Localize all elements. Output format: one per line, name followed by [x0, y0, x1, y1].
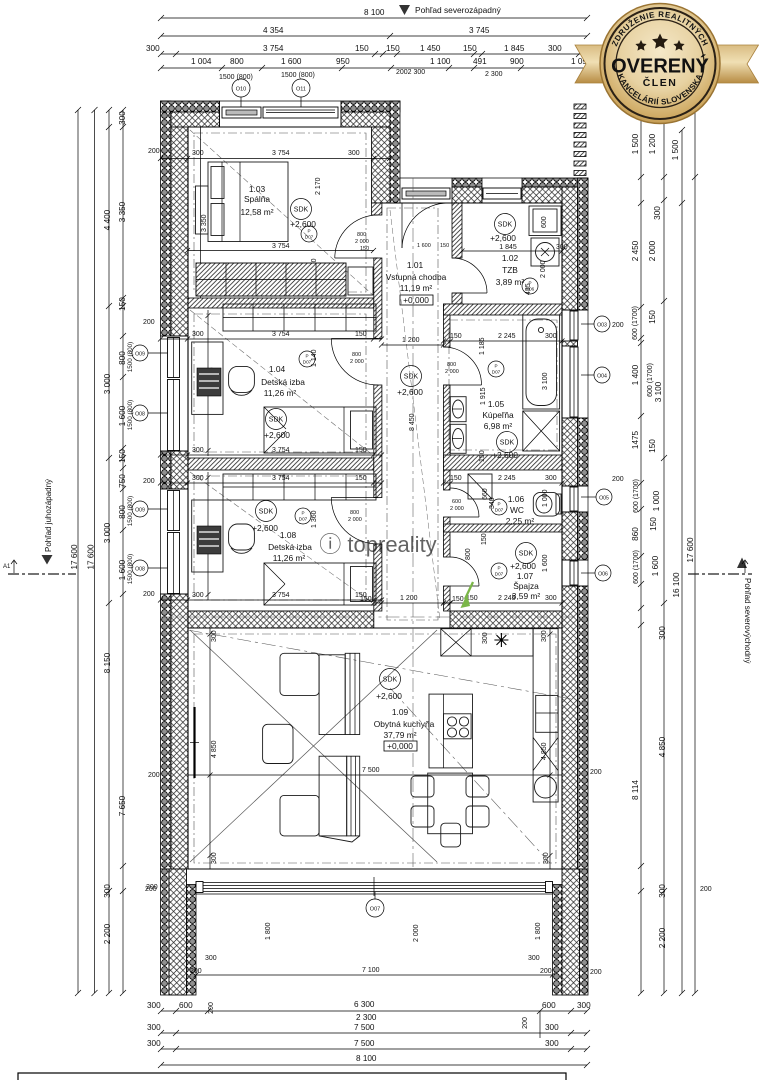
svg-text:200: 200 — [148, 772, 160, 779]
svg-text:491: 491 — [473, 57, 487, 66]
svg-text:1 200: 1 200 — [400, 595, 418, 602]
svg-text:+2,600: +2,600 — [490, 233, 516, 243]
svg-text:200: 200 — [522, 1017, 529, 1029]
svg-text:O10: O10 — [236, 87, 246, 93]
svg-text:O07: O07 — [370, 907, 380, 913]
svg-text:P: P — [528, 281, 531, 286]
svg-text:1.09: 1.09 — [392, 707, 409, 717]
svg-text:7 500: 7 500 — [362, 767, 380, 774]
svg-text:1 000: 1 000 — [652, 490, 661, 511]
svg-text:1 600: 1 600 — [417, 243, 431, 249]
svg-text:+2,600: +2,600 — [376, 691, 402, 701]
svg-text:+2,600: +2,600 — [290, 219, 316, 229]
svg-text:1 360: 1 360 — [311, 510, 318, 528]
svg-text:800: 800 — [357, 232, 366, 238]
svg-text:200: 200 — [190, 968, 202, 975]
svg-text:Detská izba: Detská izba — [268, 542, 312, 552]
svg-text:1 200: 1 200 — [648, 133, 657, 154]
svg-text:3 745: 3 745 — [469, 26, 490, 35]
svg-text:SDK: SDK — [269, 417, 284, 424]
svg-text:300: 300 — [653, 206, 662, 220]
svg-text:150: 150 — [648, 310, 657, 324]
svg-text:300: 300 — [211, 852, 218, 864]
svg-text:SDK: SDK — [498, 222, 513, 229]
svg-text:150: 150 — [463, 44, 477, 53]
svg-text:150: 150 — [481, 533, 488, 545]
svg-text:6,98 m²: 6,98 m² — [484, 421, 513, 431]
svg-text:1.04: 1.04 — [269, 364, 286, 374]
svg-text:SDK: SDK — [294, 207, 309, 214]
svg-text:300: 300 — [541, 630, 548, 642]
svg-text:300: 300 — [192, 150, 204, 157]
svg-text:150: 150 — [648, 439, 657, 453]
svg-text:3 000: 3 000 — [103, 373, 112, 394]
svg-text:Pohľad juhozápadný: Pohľad juhozápadný — [44, 479, 53, 552]
svg-text:300: 300 — [556, 244, 568, 251]
svg-text:150: 150 — [360, 596, 372, 603]
svg-text:1 600: 1 600 — [651, 555, 660, 576]
svg-text:O05: O05 — [599, 496, 609, 502]
svg-text:Obytná kuchyňa: Obytná kuchyňa — [374, 719, 435, 729]
svg-text:300: 300 — [348, 150, 360, 157]
svg-text:2 000: 2 000 — [450, 506, 464, 512]
svg-text:300: 300 — [543, 852, 550, 864]
svg-text:P: P — [307, 229, 310, 234]
svg-text:150: 150 — [118, 297, 127, 311]
svg-text:4 400: 4 400 — [103, 209, 112, 230]
svg-text:3 350: 3 350 — [201, 214, 208, 232]
svg-text:2 450: 2 450 — [631, 240, 640, 261]
svg-text:17 600: 17 600 — [87, 544, 96, 569]
svg-text:300: 300 — [658, 626, 667, 640]
svg-text:O08: O08 — [135, 567, 145, 573]
svg-text:P: P — [301, 511, 304, 516]
svg-text:SDK: SDK — [383, 677, 398, 684]
svg-text:2 300: 2 300 — [485, 71, 503, 78]
svg-text:1 600: 1 600 — [542, 554, 549, 572]
svg-text:O09: O09 — [135, 508, 145, 514]
svg-text:P: P — [497, 566, 500, 571]
svg-text:150: 150 — [450, 475, 462, 482]
svg-text:P: P — [494, 364, 497, 369]
svg-text:200: 200 — [612, 322, 624, 329]
svg-text:200: 200 — [700, 886, 712, 893]
svg-text:Spálňa: Spálňa — [244, 194, 270, 204]
svg-text:150: 150 — [118, 449, 127, 463]
svg-text:300: 300 — [545, 595, 557, 602]
svg-text:4 850: 4 850 — [541, 742, 548, 760]
svg-text:1.03: 1.03 — [249, 184, 266, 194]
svg-text:300: 300 — [147, 1023, 161, 1032]
svg-text:2 000: 2 000 — [413, 924, 420, 942]
svg-text:O08: O08 — [135, 412, 145, 418]
svg-text:D07: D07 — [305, 235, 314, 240]
svg-text:800: 800 — [230, 57, 244, 66]
svg-text:3 754: 3 754 — [272, 243, 290, 250]
svg-text:16 100: 16 100 — [672, 572, 681, 597]
svg-text:3,89 m²: 3,89 m² — [496, 277, 525, 287]
svg-text:1.07: 1.07 — [517, 571, 534, 581]
svg-text:300: 300 — [545, 1023, 559, 1032]
svg-text:3 100: 3 100 — [654, 381, 663, 402]
svg-text:300: 300 — [211, 630, 218, 642]
svg-text:+2,600: +2,600 — [510, 561, 536, 571]
svg-text:7 650: 7 650 — [118, 795, 127, 816]
svg-text:800: 800 — [447, 362, 456, 368]
svg-text:1 004: 1 004 — [191, 57, 212, 66]
svg-text:D06: D06 — [526, 287, 535, 292]
svg-text:1.05: 1.05 — [488, 399, 505, 409]
svg-text:200: 200 — [145, 886, 157, 893]
svg-text:150: 150 — [450, 333, 462, 340]
svg-text:600: 600 — [452, 499, 461, 505]
svg-text:200: 200 — [143, 319, 155, 326]
svg-text:2 245: 2 245 — [498, 475, 516, 482]
svg-text:2002 300: 2002 300 — [396, 69, 425, 76]
svg-text:2 245: 2 245 — [498, 595, 516, 602]
svg-text:600 (1700): 600 (1700) — [633, 479, 640, 513]
svg-text:800: 800 — [352, 352, 361, 358]
svg-text:WC: WC — [510, 505, 524, 515]
svg-text:2,25 m²: 2,25 m² — [506, 516, 535, 526]
svg-text:11,19 m²: 11,19 m² — [400, 283, 433, 293]
svg-text:300: 300 — [192, 331, 204, 338]
svg-text:+0,000: +0,000 — [387, 741, 413, 751]
svg-text:150: 150 — [452, 596, 464, 603]
svg-text:D07: D07 — [303, 360, 312, 365]
svg-text:SDK: SDK — [519, 551, 534, 558]
svg-text:600: 600 — [541, 216, 548, 228]
svg-text:37,79 m²: 37,79 m² — [383, 730, 416, 740]
svg-text:150: 150 — [479, 450, 486, 462]
svg-text:150: 150 — [386, 44, 400, 53]
svg-text:200: 200 — [590, 969, 602, 976]
svg-text:17 600: 17 600 — [70, 544, 79, 569]
svg-text:2 300: 2 300 — [356, 1013, 377, 1022]
svg-text:2 000: 2 000 — [540, 260, 547, 278]
svg-text:O09: O09 — [135, 352, 145, 358]
svg-text:7 500: 7 500 — [354, 1023, 375, 1032]
svg-text:P: P — [497, 502, 500, 507]
svg-text:4 850: 4 850 — [211, 740, 218, 758]
svg-text:300: 300 — [192, 475, 204, 482]
svg-text:11,26 m²: 11,26 m² — [273, 553, 306, 563]
svg-text:1 600: 1 600 — [281, 57, 302, 66]
svg-text:1 200: 1 200 — [402, 337, 420, 344]
svg-text:1 600: 1 600 — [118, 405, 127, 426]
svg-text:+0,000: +0,000 — [403, 295, 429, 305]
svg-text:300: 300 — [146, 44, 160, 53]
svg-text:TZB: TZB — [502, 265, 518, 275]
svg-text:2 170: 2 170 — [315, 177, 322, 195]
svg-text:300: 300 — [482, 632, 489, 644]
svg-text:11,26 m²: 11,26 m² — [264, 388, 297, 398]
svg-text:1.08: 1.08 — [280, 530, 297, 540]
svg-text:4 850: 4 850 — [658, 736, 667, 757]
svg-text:300: 300 — [545, 1039, 559, 1048]
svg-text:3 754: 3 754 — [272, 331, 290, 338]
svg-text:2 000: 2 000 — [348, 517, 362, 523]
svg-text:1500 (800): 1500 (800) — [127, 554, 134, 584]
svg-text:150: 150 — [360, 246, 369, 252]
svg-text:2 245: 2 245 — [498, 333, 516, 340]
svg-text:1 400: 1 400 — [631, 364, 640, 385]
svg-text:300: 300 — [577, 1001, 591, 1010]
svg-text:+2,600: +2,600 — [264, 430, 290, 440]
svg-text:1 500: 1 500 — [671, 139, 680, 160]
svg-text:1 800: 1 800 — [535, 922, 542, 940]
svg-text:1 100: 1 100 — [430, 57, 451, 66]
svg-text:SDK: SDK — [500, 440, 515, 447]
svg-text:1 800: 1 800 — [265, 922, 272, 940]
svg-text:D07: D07 — [495, 572, 504, 577]
svg-text:1500 (800): 1500 (800) — [219, 74, 253, 81]
svg-text:3 754: 3 754 — [272, 592, 290, 599]
svg-text:300: 300 — [147, 1039, 161, 1048]
svg-text:800: 800 — [465, 548, 472, 560]
svg-text:OVERENÝ: OVERENÝ — [611, 54, 709, 78]
svg-text:300: 300 — [658, 884, 667, 898]
svg-text:SDK: SDK — [404, 374, 419, 381]
svg-text:300: 300 — [192, 592, 204, 599]
svg-text:300: 300 — [545, 333, 557, 340]
svg-text:150: 150 — [355, 44, 369, 53]
svg-text:1 600: 1 600 — [118, 559, 127, 580]
svg-text:1500 (800): 1500 (800) — [127, 496, 134, 526]
svg-text:2 200: 2 200 — [103, 923, 112, 944]
svg-text:1 845: 1 845 — [504, 44, 525, 53]
svg-text:600: 600 — [542, 1001, 556, 1010]
svg-text:150: 150 — [440, 243, 449, 249]
svg-text:300: 300 — [528, 955, 540, 962]
svg-text:1500 (800): 1500 (800) — [127, 400, 134, 430]
svg-text:2 000: 2 000 — [648, 240, 657, 261]
svg-text:1475: 1475 — [631, 430, 640, 449]
svg-text:1.06: 1.06 — [508, 494, 525, 504]
svg-text:1 450: 1 450 — [420, 44, 441, 53]
svg-text:7 100: 7 100 — [362, 967, 380, 974]
svg-text:800: 800 — [118, 351, 127, 365]
svg-text:800: 800 — [118, 505, 127, 519]
svg-text:1.02: 1.02 — [502, 253, 519, 263]
svg-text:600 (1700): 600 (1700) — [633, 550, 640, 584]
svg-text:600 (1700): 600 (1700) — [632, 306, 639, 340]
svg-text:Špajza: Špajza — [513, 581, 539, 591]
svg-text:O11: O11 — [296, 87, 306, 93]
svg-text:1 140: 1 140 — [311, 349, 318, 367]
svg-text:150: 150 — [355, 475, 367, 482]
svg-text:150: 150 — [649, 517, 658, 531]
svg-text:300: 300 — [545, 475, 557, 482]
svg-text:8 150: 8 150 — [103, 652, 112, 673]
svg-text:200: 200 — [208, 1002, 215, 1014]
svg-text:O06: O06 — [598, 572, 608, 578]
svg-text:P: P — [305, 354, 308, 359]
svg-text:2 000: 2 000 — [350, 359, 364, 365]
svg-text:D07: D07 — [495, 508, 504, 513]
svg-text:1500 (800): 1500 (800) — [281, 72, 315, 79]
svg-text:150: 150 — [355, 331, 367, 338]
svg-text:3 350: 3 350 — [118, 201, 127, 222]
svg-text:950: 950 — [336, 57, 350, 66]
svg-text:300: 300 — [118, 111, 127, 125]
svg-text:17 600: 17 600 — [686, 537, 695, 562]
svg-text:Detská izba: Detská izba — [261, 377, 305, 387]
svg-text:Pohľad severozápadný: Pohľad severozápadný — [415, 5, 502, 15]
svg-text:3 754: 3 754 — [272, 150, 290, 157]
svg-text:3,59 m²: 3,59 m² — [512, 591, 541, 601]
svg-text:1 500: 1 500 — [631, 133, 640, 154]
svg-text:Kúpeľňa: Kúpeľňa — [482, 410, 514, 420]
svg-text:900: 900 — [510, 57, 524, 66]
svg-text:ⓘ topreality: ⓘ topreality — [319, 532, 436, 557]
svg-text:300: 300 — [205, 955, 217, 962]
svg-text:2 200: 2 200 — [658, 927, 667, 948]
svg-text:7 500: 7 500 — [354, 1039, 375, 1048]
svg-text:O03: O03 — [597, 323, 607, 329]
svg-text:SDK: SDK — [259, 509, 274, 516]
svg-text:Pohľad severovýchodný: Pohľad severovýchodný — [743, 578, 752, 664]
svg-text:200: 200 — [590, 769, 602, 776]
svg-text:+2,600: +2,600 — [252, 523, 278, 533]
svg-text:200: 200 — [148, 148, 160, 155]
svg-text:ČLEN: ČLEN — [643, 76, 678, 89]
svg-text:1.01: 1.01 — [407, 260, 424, 270]
svg-text:3 000: 3 000 — [103, 522, 112, 543]
svg-text:6 300: 6 300 — [354, 1000, 375, 1009]
svg-text:600 (1700): 600 (1700) — [647, 363, 654, 397]
svg-text:2 000: 2 000 — [445, 369, 459, 375]
svg-text:860: 860 — [631, 527, 640, 541]
svg-text:4 354: 4 354 — [263, 26, 284, 35]
svg-text:300: 300 — [192, 447, 204, 454]
svg-text:O04: O04 — [597, 374, 607, 380]
svg-text:8 114: 8 114 — [631, 780, 640, 800]
svg-text:200: 200 — [540, 968, 552, 975]
svg-text:Vstupná chodba: Vstupná chodba — [386, 272, 447, 282]
svg-text:D07: D07 — [299, 517, 308, 522]
svg-text:3 754: 3 754 — [272, 475, 290, 482]
svg-text:3 100: 3 100 — [542, 372, 549, 390]
svg-text:300: 300 — [147, 1001, 161, 1010]
svg-text:12,58 m²: 12,58 m² — [240, 207, 273, 217]
svg-text:8 100: 8 100 — [356, 1054, 377, 1063]
svg-text:+2,600: +2,600 — [397, 387, 423, 397]
svg-text:300: 300 — [103, 884, 112, 898]
svg-text:200: 200 — [143, 478, 155, 485]
svg-text:200: 200 — [143, 591, 155, 598]
svg-text:8 100: 8 100 — [364, 8, 385, 17]
svg-text:1 915: 1 915 — [480, 387, 487, 405]
svg-text:800: 800 — [350, 510, 359, 516]
svg-text:2 000: 2 000 — [355, 239, 369, 245]
svg-text:750: 750 — [118, 474, 127, 488]
svg-text:D07: D07 — [492, 370, 501, 375]
svg-text:3 754: 3 754 — [263, 44, 284, 53]
svg-text:1 845: 1 845 — [499, 244, 517, 251]
svg-text:200: 200 — [612, 476, 624, 483]
svg-text:A1: A1 — [3, 564, 11, 570]
svg-text:1 185: 1 185 — [479, 337, 486, 355]
svg-text:600: 600 — [179, 1001, 193, 1010]
svg-text:300: 300 — [548, 44, 562, 53]
svg-text:+2,600: +2,600 — [492, 450, 518, 460]
